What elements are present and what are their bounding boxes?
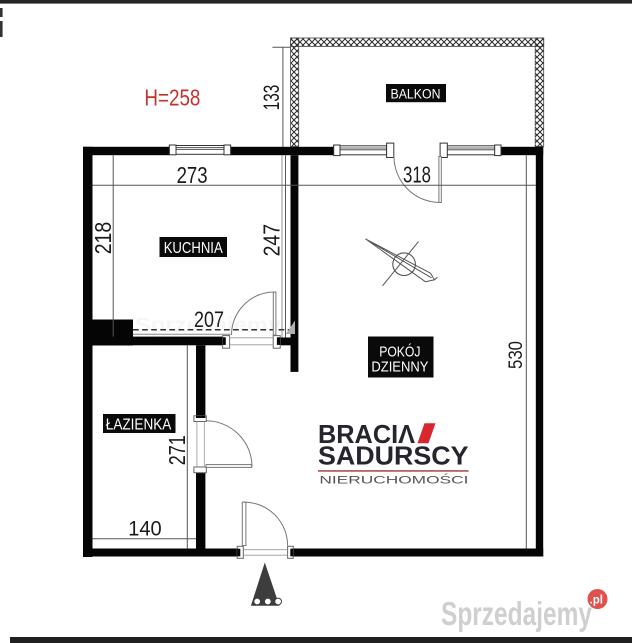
- svg-text:Sprzedajemy: Sprzedajemy: [135, 314, 281, 337]
- svg-text:140: 140: [128, 516, 162, 540]
- svg-text:SADURSCY: SADURSCY: [318, 441, 469, 471]
- svg-text:Sprzedajemy: Sprzedajemy: [441, 595, 592, 632]
- svg-text:271: 271: [164, 435, 190, 465]
- svg-text:KUCHNIA: KUCHNIA: [164, 240, 224, 257]
- svg-text:218: 218: [90, 222, 116, 255]
- svg-text:.pl: .pl: [590, 595, 603, 607]
- svg-text:BALKON: BALKON: [391, 87, 441, 102]
- svg-text:NIERUCHOMOŚCI: NIERUCHOMOŚCI: [319, 474, 468, 487]
- svg-text:DZIENNY: DZIENNY: [371, 358, 428, 375]
- svg-text:273: 273: [177, 162, 208, 188]
- svg-text:133: 133: [259, 85, 284, 111]
- svg-text:ŁAZIENKA: ŁAZIENKA: [106, 417, 172, 434]
- svg-text:318: 318: [403, 161, 431, 187]
- svg-text:247: 247: [259, 224, 285, 257]
- svg-text:530: 530: [505, 341, 527, 369]
- svg-text:H=258: H=258: [144, 84, 200, 110]
